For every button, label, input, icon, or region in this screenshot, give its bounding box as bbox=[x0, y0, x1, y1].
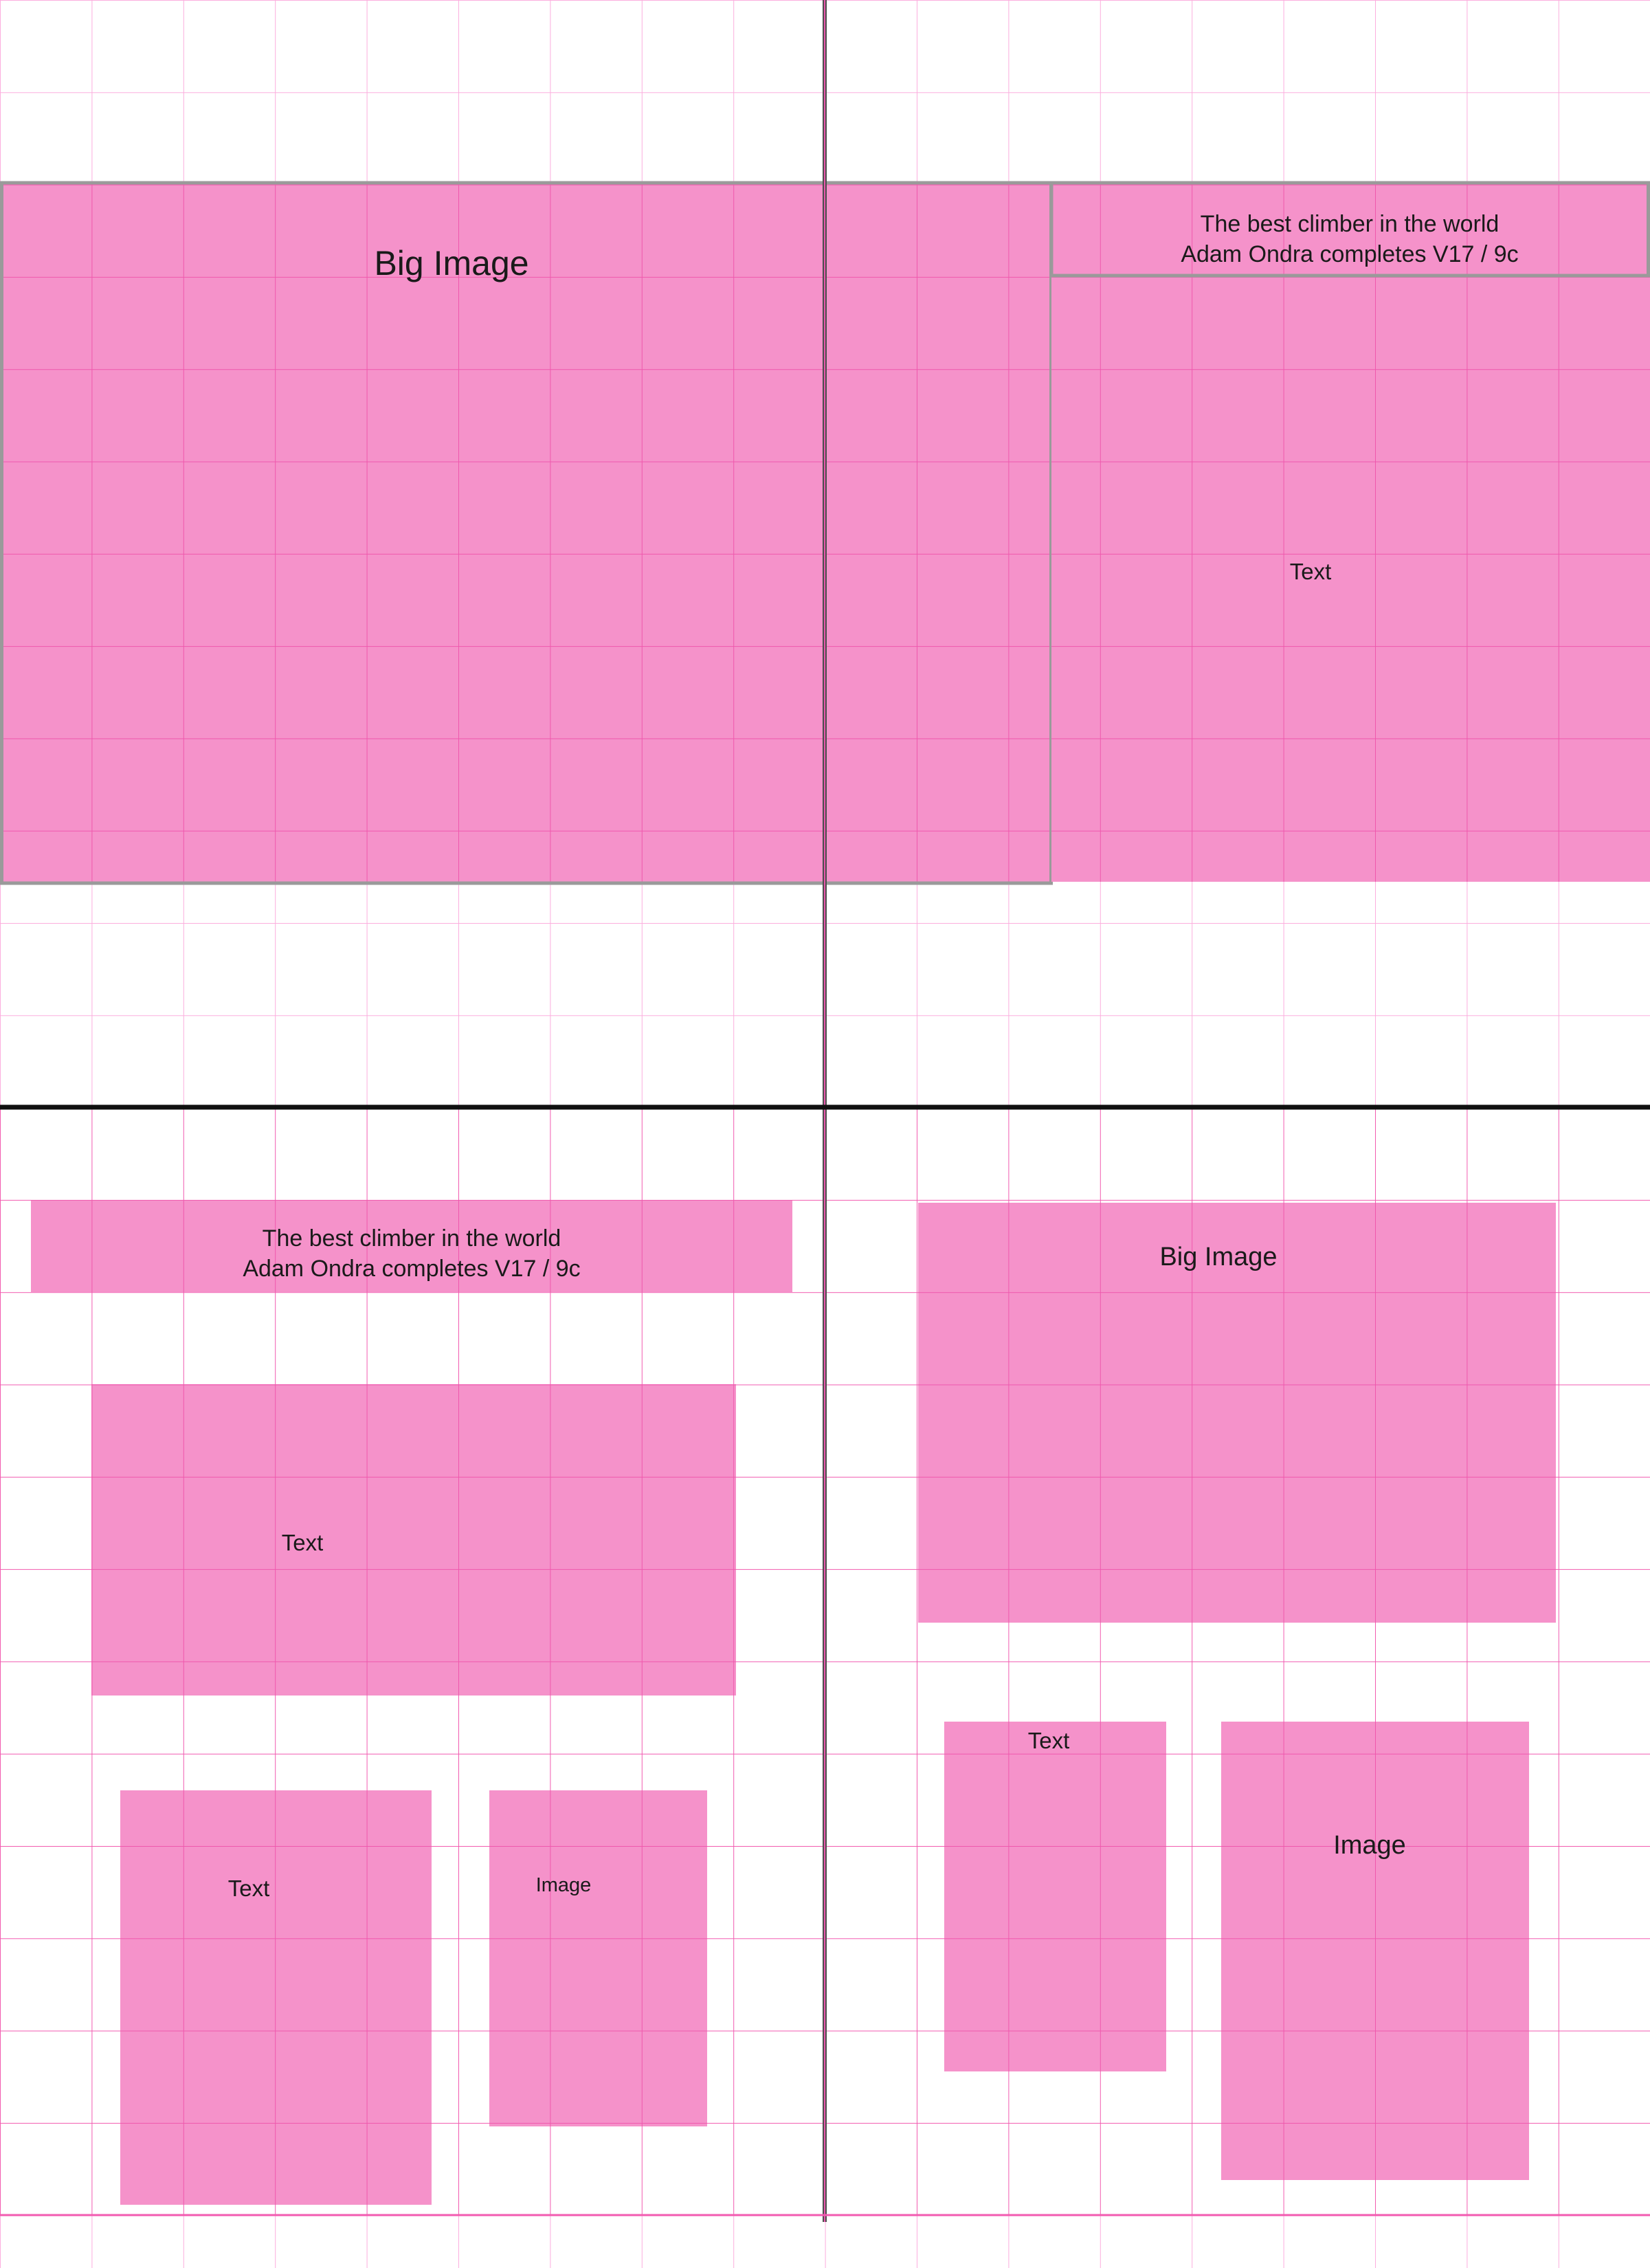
layout-canvas: Big Image The best climber in the world … bbox=[0, 0, 1650, 2268]
headline-line2: Adam Ondra completes V17 / 9c bbox=[1181, 241, 1518, 267]
text-frame-grid bbox=[1051, 278, 1650, 882]
top-left-big-image-block: Big Image bbox=[2, 183, 1051, 883]
bottom-left-text-block: Text bbox=[91, 1384, 736, 1696]
image-frame-grid bbox=[1221, 1722, 1529, 2180]
text-frame-grid bbox=[91, 1384, 736, 1696]
image-frame-grid bbox=[489, 1790, 707, 2126]
text-label: Text bbox=[1290, 559, 1332, 584]
bottom-left-text-column-block: Text bbox=[120, 1790, 432, 2205]
headline-line1: The best climber in the world bbox=[1201, 211, 1500, 237]
headline-line1: The best climber in the world bbox=[263, 1225, 561, 1252]
bottom-left-image-block: Image bbox=[489, 1790, 707, 2126]
bottom-right-big-image-block: Big Image bbox=[918, 1203, 1556, 1623]
grid-bottom-margin bbox=[0, 2215, 1650, 2268]
text-label: Text bbox=[1028, 1728, 1070, 1753]
big-image-frame-grid bbox=[3, 185, 1049, 882]
top-right-headline-block: The best climber in the world Adam Ondra… bbox=[1051, 183, 1649, 276]
bottom-left-headline-block: The best climber in the world Adam Ondra… bbox=[31, 1200, 792, 1292]
text-frame-grid bbox=[120, 1790, 432, 2205]
big-image-label: Big Image bbox=[1159, 1243, 1277, 1271]
text-label: Text bbox=[282, 1530, 324, 1555]
bottom-right-text-block: Text bbox=[944, 1722, 1166, 2071]
image-label: Image bbox=[536, 1874, 592, 1896]
bottom-right-image-block: Image bbox=[1221, 1722, 1529, 2180]
image-label: Image bbox=[1333, 1831, 1406, 1860]
text-frame-grid bbox=[944, 1722, 1166, 2071]
layout-spread-svg: Big Image The best climber in the world … bbox=[0, 0, 1650, 2268]
text-label: Text bbox=[228, 1876, 270, 1901]
top-right-text-block: Text bbox=[1051, 278, 1650, 882]
big-image-label: Big Image bbox=[374, 244, 528, 282]
headline-line2: Adam Ondra completes V17 / 9c bbox=[243, 1256, 580, 1282]
